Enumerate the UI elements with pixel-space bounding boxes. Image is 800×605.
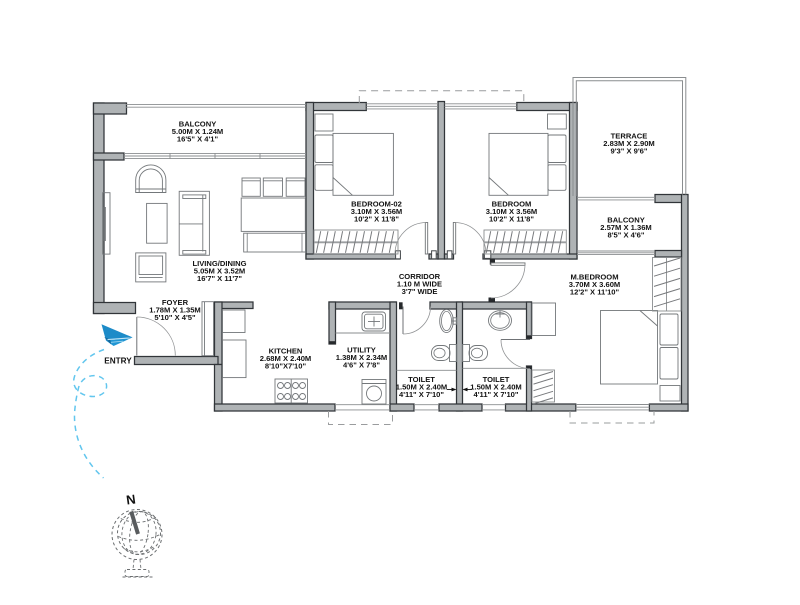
svg-text:ENTRY: ENTRY <box>104 357 132 366</box>
svg-text:BALCONY2.57M X 1.36M8'5" X 4'6: BALCONY2.57M X 1.36M8'5" X 4'6" <box>600 216 652 240</box>
svg-text:BALCONY5.00M X 1.24M16'5" X 4': BALCONY5.00M X 1.24M16'5" X 4'1" <box>172 120 224 144</box>
svg-text:TERRACE2.83M X 2.90M9'3" X 9'6: TERRACE2.83M X 2.90M9'3" X 9'6" <box>603 132 655 156</box>
svg-text:BEDROOM-023.10M X 3.56M10'2" X: BEDROOM-023.10M X 3.56M10'2" X 11'8" <box>351 200 403 224</box>
svg-text:CORRIDOR1.10 M WIDE3'7" WIDE: CORRIDOR1.10 M WIDE3'7" WIDE <box>397 272 442 296</box>
svg-text:M.BEDROOM3.70M X 3.60M12'2" X: M.BEDROOM3.70M X 3.60M12'2" X 11'10" <box>569 273 621 297</box>
svg-text:LIVING/DINING5.05M X 3.52M16'7: LIVING/DINING5.05M X 3.52M16'7" X 11'7" <box>192 259 246 283</box>
svg-text:BEDROOM3.10M X 3.56M10'2" X 11: BEDROOM3.10M X 3.56M10'2" X 11'8" <box>486 200 538 224</box>
